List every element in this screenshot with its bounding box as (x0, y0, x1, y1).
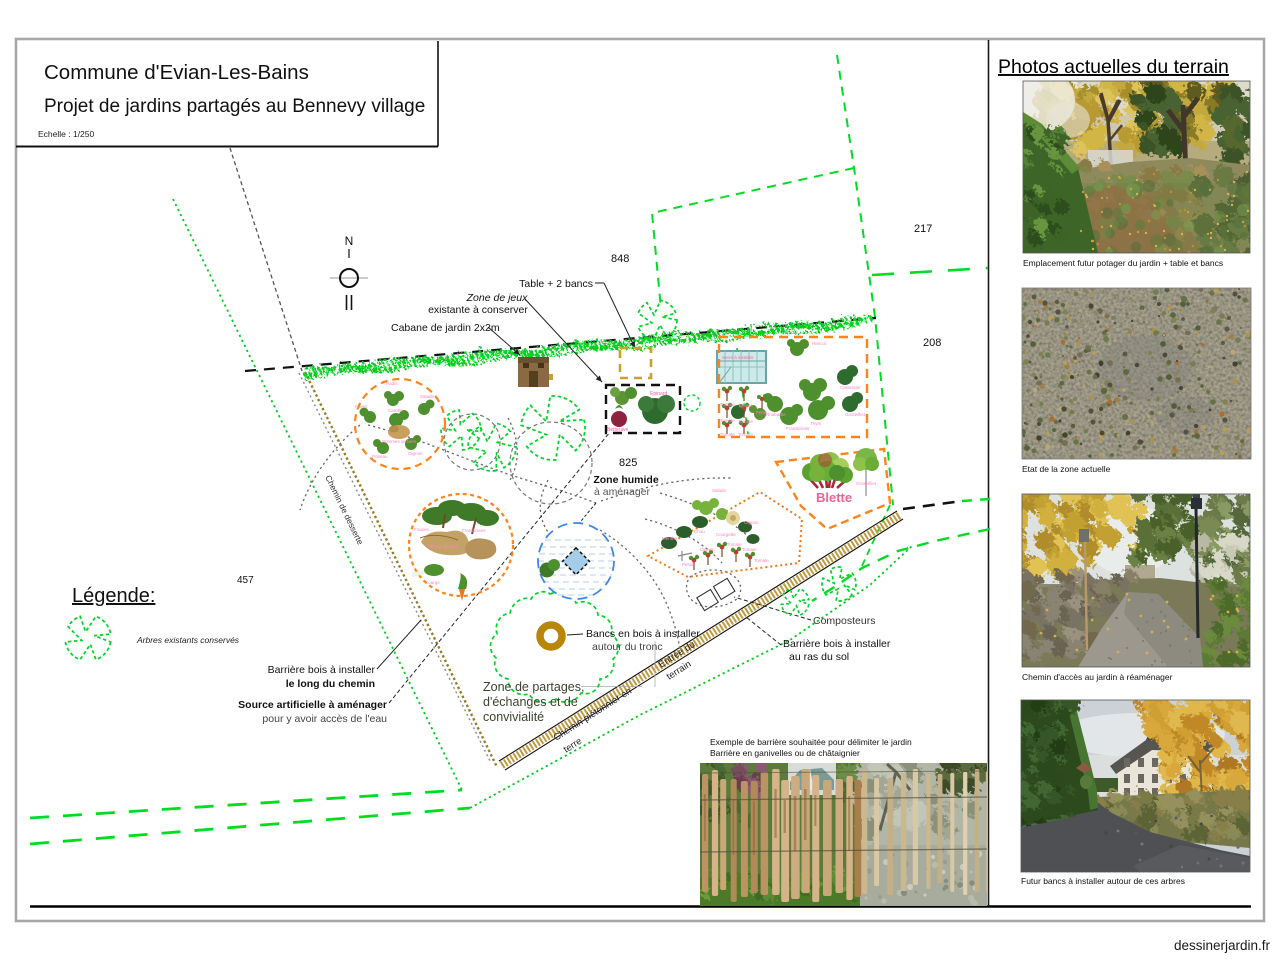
svg-text:Arbres existants conservés: Arbres existants conservés (136, 635, 240, 645)
svg-text:Tomate: Tomate (720, 432, 735, 437)
svg-text:Légende:: Légende: (72, 585, 155, 607)
svg-text:Salade: Salade (420, 394, 435, 399)
svg-text:le long du chemin: le long du chemin (286, 678, 375, 690)
svg-text:Betterave: Betterave (607, 427, 629, 433)
svg-text:Pierres de lave: Pierres de lave (428, 544, 459, 549)
svg-text:N: N (345, 234, 354, 248)
svg-text:Epinard: Epinard (650, 391, 667, 397)
svg-text:Chou: Chou (694, 529, 705, 534)
svg-text:Tomate: Tomate (738, 403, 753, 408)
svg-text:autour du tronc: autour du tronc (592, 641, 663, 653)
svg-text:457: 457 (237, 575, 254, 586)
svg-text:Bancs en bois à installer: Bancs en bois à installer (586, 628, 700, 640)
svg-text:Carotte: Carotte (388, 408, 403, 413)
svg-text:pour y avoir accès de l'eau: pour y avoir accès de l'eau (262, 713, 387, 725)
svg-text:Commune d'Evian-Les-Bains: Commune d'Evian-Les-Bains (44, 61, 309, 84)
svg-text:Navet: Navet (355, 404, 368, 409)
svg-text:Menthe: Menthe (662, 536, 678, 541)
svg-text:Framboisier: Framboisier (786, 426, 810, 431)
svg-text:Tomate: Tomate (720, 402, 735, 407)
svg-text:Courgette: Courgette (716, 532, 736, 537)
svg-text:Pommes de terre: Pommes de terre (382, 439, 417, 444)
svg-text:208: 208 (923, 337, 941, 349)
svg-text:848: 848 (611, 253, 629, 265)
svg-text:Salade: Salade (712, 488, 727, 493)
svg-text:Oignon: Oignon (744, 520, 759, 525)
svg-text:au ras du sol: au ras du sol (789, 651, 849, 663)
svg-text:Groseillier: Groseillier (856, 481, 877, 486)
svg-text:Table + 2 bancs: Table + 2 bancs (519, 278, 593, 290)
svg-text:Chemin d'accès au jardin à réa: Chemin d'accès au jardin à réaménager (1022, 672, 1173, 682)
svg-text:Poireau: Poireau (372, 454, 388, 459)
svg-text:Emplacement futur potager du j: Emplacement futur potager du jardin + ta… (1023, 258, 1223, 268)
svg-text:Courge: Courge (425, 580, 440, 585)
svg-text:Etat de la zone actuelle: Etat de la zone actuelle (1022, 464, 1111, 474)
svg-text:convivialité: convivialité (483, 710, 544, 724)
svg-text:Radis: Radis (386, 381, 398, 386)
svg-text:Tomate: Tomate (738, 432, 753, 437)
svg-text:existante à conserver: existante à conserver (428, 304, 528, 316)
svg-text:Echelle : 1/250: Echelle : 1/250 (38, 129, 95, 139)
svg-text:Projet de jardins partagés au: Projet de jardins partagés au Bennevy vi… (44, 96, 425, 117)
svg-text:Cassissier: Cassissier (840, 385, 861, 390)
svg-text:Barrière bois à installer: Barrière bois à installer (783, 638, 891, 650)
svg-text:Zone de jeux: Zone de jeux (466, 292, 528, 304)
svg-text:Photos actuelles du terrain: Photos actuelles du terrain (998, 56, 1229, 78)
svg-text:Groseillier: Groseillier (845, 412, 866, 417)
svg-text:Tomate: Tomate (742, 547, 757, 552)
svg-text:Persil: Persil (682, 562, 693, 567)
svg-text:Fraises: Fraises (414, 527, 430, 532)
svg-text:Zone humide: Zone humide (593, 474, 658, 486)
svg-text:Tomate: Tomate (727, 542, 742, 547)
svg-text:Tomate: Tomate (754, 558, 769, 563)
svg-text:Rhubarbe: Rhubarbe (766, 412, 786, 417)
svg-text:217: 217 (914, 223, 932, 235)
svg-text:Futur bancs à installer autour: Futur bancs à installer autour de ces ar… (1021, 876, 1185, 886)
svg-text:Barrière en ganivelles ou de c: Barrière en ganivelles ou de châtaignier (710, 748, 860, 758)
svg-text:Source artificielle à aménager: Source artificielle à aménager (238, 699, 387, 711)
svg-text:à aménager: à aménager (594, 486, 651, 498)
svg-text:Thym: Thym (810, 421, 822, 426)
svg-text:Tomate: Tomate (738, 419, 753, 424)
svg-text:Oignon: Oignon (408, 451, 423, 456)
svg-text:Zone de partages,: Zone de partages, (483, 680, 584, 694)
svg-text:Framboises: Framboises (462, 528, 486, 533)
svg-text:Blette: Blette (816, 490, 852, 505)
svg-text:Composteurs: Composteurs (813, 615, 875, 627)
svg-text:Exemple de barrière souhaitée: Exemple de barrière souhaitée pour délim… (710, 737, 912, 747)
svg-text:Barrière bois à installer: Barrière bois à installer (268, 664, 376, 676)
svg-text:Tomate: Tomate (720, 418, 735, 423)
svg-text:Haricot: Haricot (812, 341, 827, 346)
svg-text:Cabane de jardin 2x2m: Cabane de jardin 2x2m (391, 322, 500, 334)
svg-text:Serre à installer: Serre à installer (722, 355, 754, 360)
svg-text:Oignon: Oignon (700, 547, 715, 552)
svg-text:dessinerjardin.fr: dessinerjardin.fr (1174, 938, 1271, 953)
svg-text:d'échanges et de: d'échanges et de (483, 695, 578, 709)
svg-text:825: 825 (619, 457, 637, 469)
